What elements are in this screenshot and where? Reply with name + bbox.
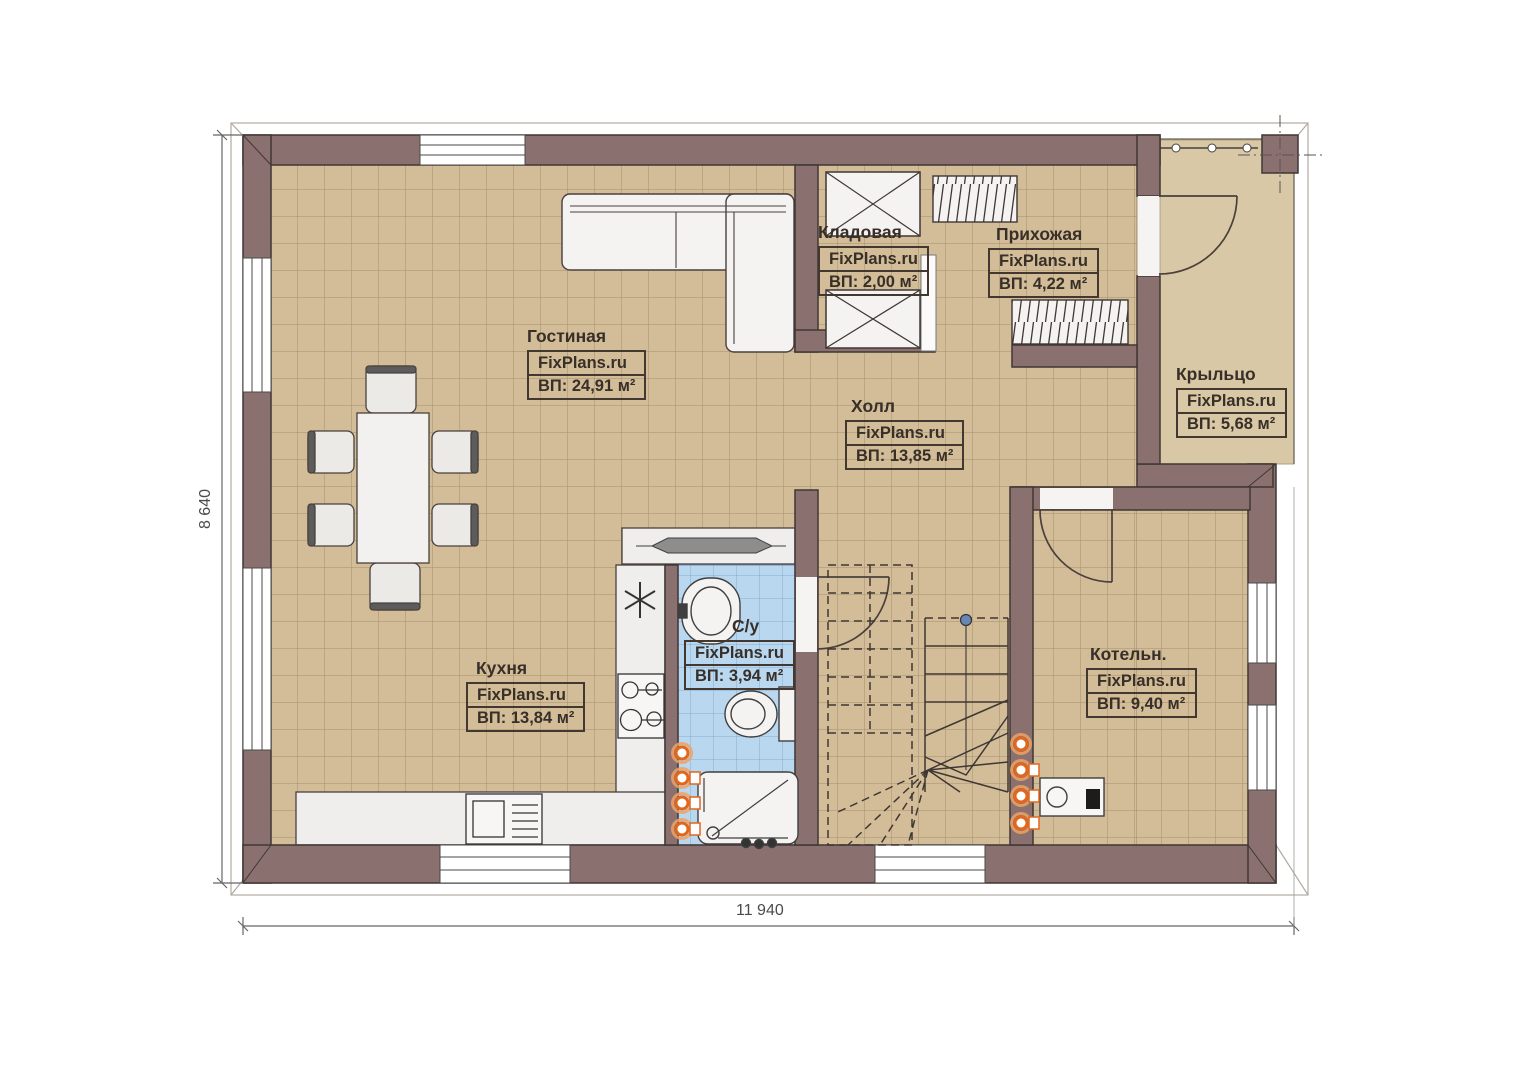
dimension-width-label: 11 940 <box>736 902 784 920</box>
brand-label: FixPlans.ru <box>1088 670 1195 694</box>
area-label: ВП: 5,68 м² <box>1178 414 1285 436</box>
room-name: Прихожая <box>996 224 1099 245</box>
boiler-unit <box>1040 778 1104 816</box>
room-label-entry: Прихожая FixPlans.ru ВП: 4,22 м² <box>988 224 1099 298</box>
area-label: ВП: 2,00 м² <box>820 272 927 294</box>
room-info-box: FixPlans.ru ВП: 2,00 м² <box>818 246 929 296</box>
room-name: Кладовая <box>818 222 929 243</box>
brand-label: FixPlans.ru <box>990 250 1097 274</box>
area-label: ВП: 13,84 м² <box>468 708 583 730</box>
wall-right <box>1248 464 1276 883</box>
wall-porch-side-lower <box>1137 276 1160 464</box>
room-info-box: FixPlans.ru ВП: 4,22 м² <box>988 248 1099 298</box>
area-label: ВП: 9,40 м² <box>1088 694 1195 716</box>
area-label: ВП: 3,94 м² <box>686 666 793 688</box>
brand-label: FixPlans.ru <box>847 422 962 446</box>
room-name: Кухня <box>476 658 585 679</box>
pipe-marker <box>1012 735 1031 754</box>
room-label-storage: Кладовая FixPlans.ru ВП: 2,00 м² <box>818 222 929 296</box>
brand-label: FixPlans.ru <box>529 352 644 376</box>
room-info-box: FixPlans.ru ВП: 24,91 м² <box>527 350 646 400</box>
brand-label: FixPlans.ru <box>468 684 583 708</box>
wall-storage-left <box>795 165 818 352</box>
brand-label: FixPlans.ru <box>686 642 793 666</box>
boiler-door-opening <box>1040 488 1113 509</box>
wall-porch-side-upper <box>1137 135 1160 196</box>
washing-machine <box>466 794 542 844</box>
wardrobe <box>826 290 920 348</box>
wall-bottom <box>243 845 1276 883</box>
coat-rack <box>933 176 1017 222</box>
toilet <box>725 687 795 741</box>
room-label-hall: Холл FixPlans.ru ВП: 13,85 м² <box>845 396 964 470</box>
floor-plan-canvas: Гостиная FixPlans.ru ВП: 24,91 м² Кладов… <box>0 0 1528 1080</box>
room-info-box: FixPlans.ru ВП: 13,85 м² <box>845 420 964 470</box>
window <box>243 258 271 392</box>
window <box>440 845 570 883</box>
room-name: С/у <box>732 616 795 637</box>
room-label-bathroom: С/у FixPlans.ru ВП: 3,94 м² <box>684 616 795 690</box>
dining-table <box>357 413 429 563</box>
brand-label: FixPlans.ru <box>820 248 927 272</box>
room-name: Крыльцо <box>1176 364 1287 385</box>
room-name: Холл <box>851 396 964 417</box>
room-name: Гостиная <box>527 326 646 347</box>
room-info-box: FixPlans.ru ВП: 13,84 м² <box>466 682 585 732</box>
window <box>875 845 985 883</box>
dim-line-vertical <box>213 130 243 888</box>
entrance-opening <box>1138 196 1159 276</box>
wall-left <box>243 135 271 883</box>
window <box>1248 705 1276 790</box>
area-label: ВП: 24,91 м² <box>529 376 644 398</box>
room-label-boiler: Котельн. FixPlans.ru ВП: 9,40 м² <box>1086 644 1197 718</box>
wall-entry-bottom <box>1012 345 1137 367</box>
room-label-porch: Крыльцо FixPlans.ru ВП: 5,68 м² <box>1176 364 1287 438</box>
room-label-kitchen: Кухня FixPlans.ru ВП: 13,84 м² <box>466 658 585 732</box>
wall-top <box>243 135 1160 165</box>
area-label: ВП: 13,85 м² <box>847 446 962 468</box>
stove <box>618 674 664 738</box>
pipe-marker <box>673 744 692 763</box>
dimension-height-label: 8 640 <box>197 479 215 539</box>
window <box>243 568 271 750</box>
brand-label: FixPlans.ru <box>1178 390 1285 414</box>
area-label: ВП: 4,22 м² <box>990 274 1097 296</box>
room-info-box: FixPlans.ru ВП: 5,68 м² <box>1176 388 1287 438</box>
shower <box>698 772 798 849</box>
window <box>1248 583 1276 663</box>
room-name: Котельн. <box>1090 644 1197 665</box>
room-info-box: FixPlans.ru ВП: 9,40 м² <box>1086 668 1197 718</box>
stairs-door-opening <box>796 577 817 652</box>
room-info-box: FixPlans.ru ВП: 3,94 м² <box>684 640 795 690</box>
room-label-living: Гостиная FixPlans.ru ВП: 24,91 м² <box>527 326 646 400</box>
window <box>420 135 525 165</box>
stairs-node <box>961 615 972 626</box>
coat-rack <box>1012 300 1128 344</box>
